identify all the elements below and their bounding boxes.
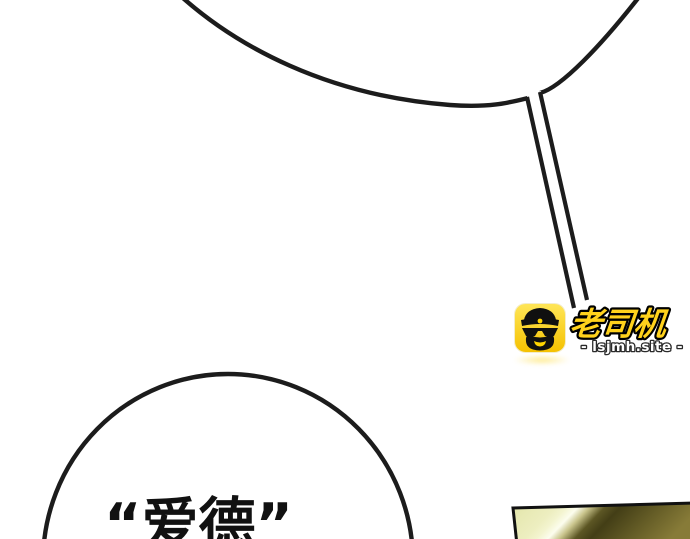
top-speech-bubble — [172, 0, 646, 106]
watermark-site-text: - lsjmh.site - — [581, 339, 683, 355]
comic-page: “爱德” 老司机 - lsj — [0, 0, 690, 539]
bottom-bubble-text: “爱德” — [104, 496, 364, 539]
site-watermark: 老司机 - lsjmh.site - — [505, 295, 690, 375]
comic-artwork — [0, 0, 690, 539]
bottom-right-panel — [513, 503, 690, 539]
watermark-brand-text: 老司机 — [568, 305, 670, 343]
speech-bubble-tail — [527, 91, 587, 308]
watermark-texts: 老司机 - lsjmh.site - — [505, 295, 690, 375]
